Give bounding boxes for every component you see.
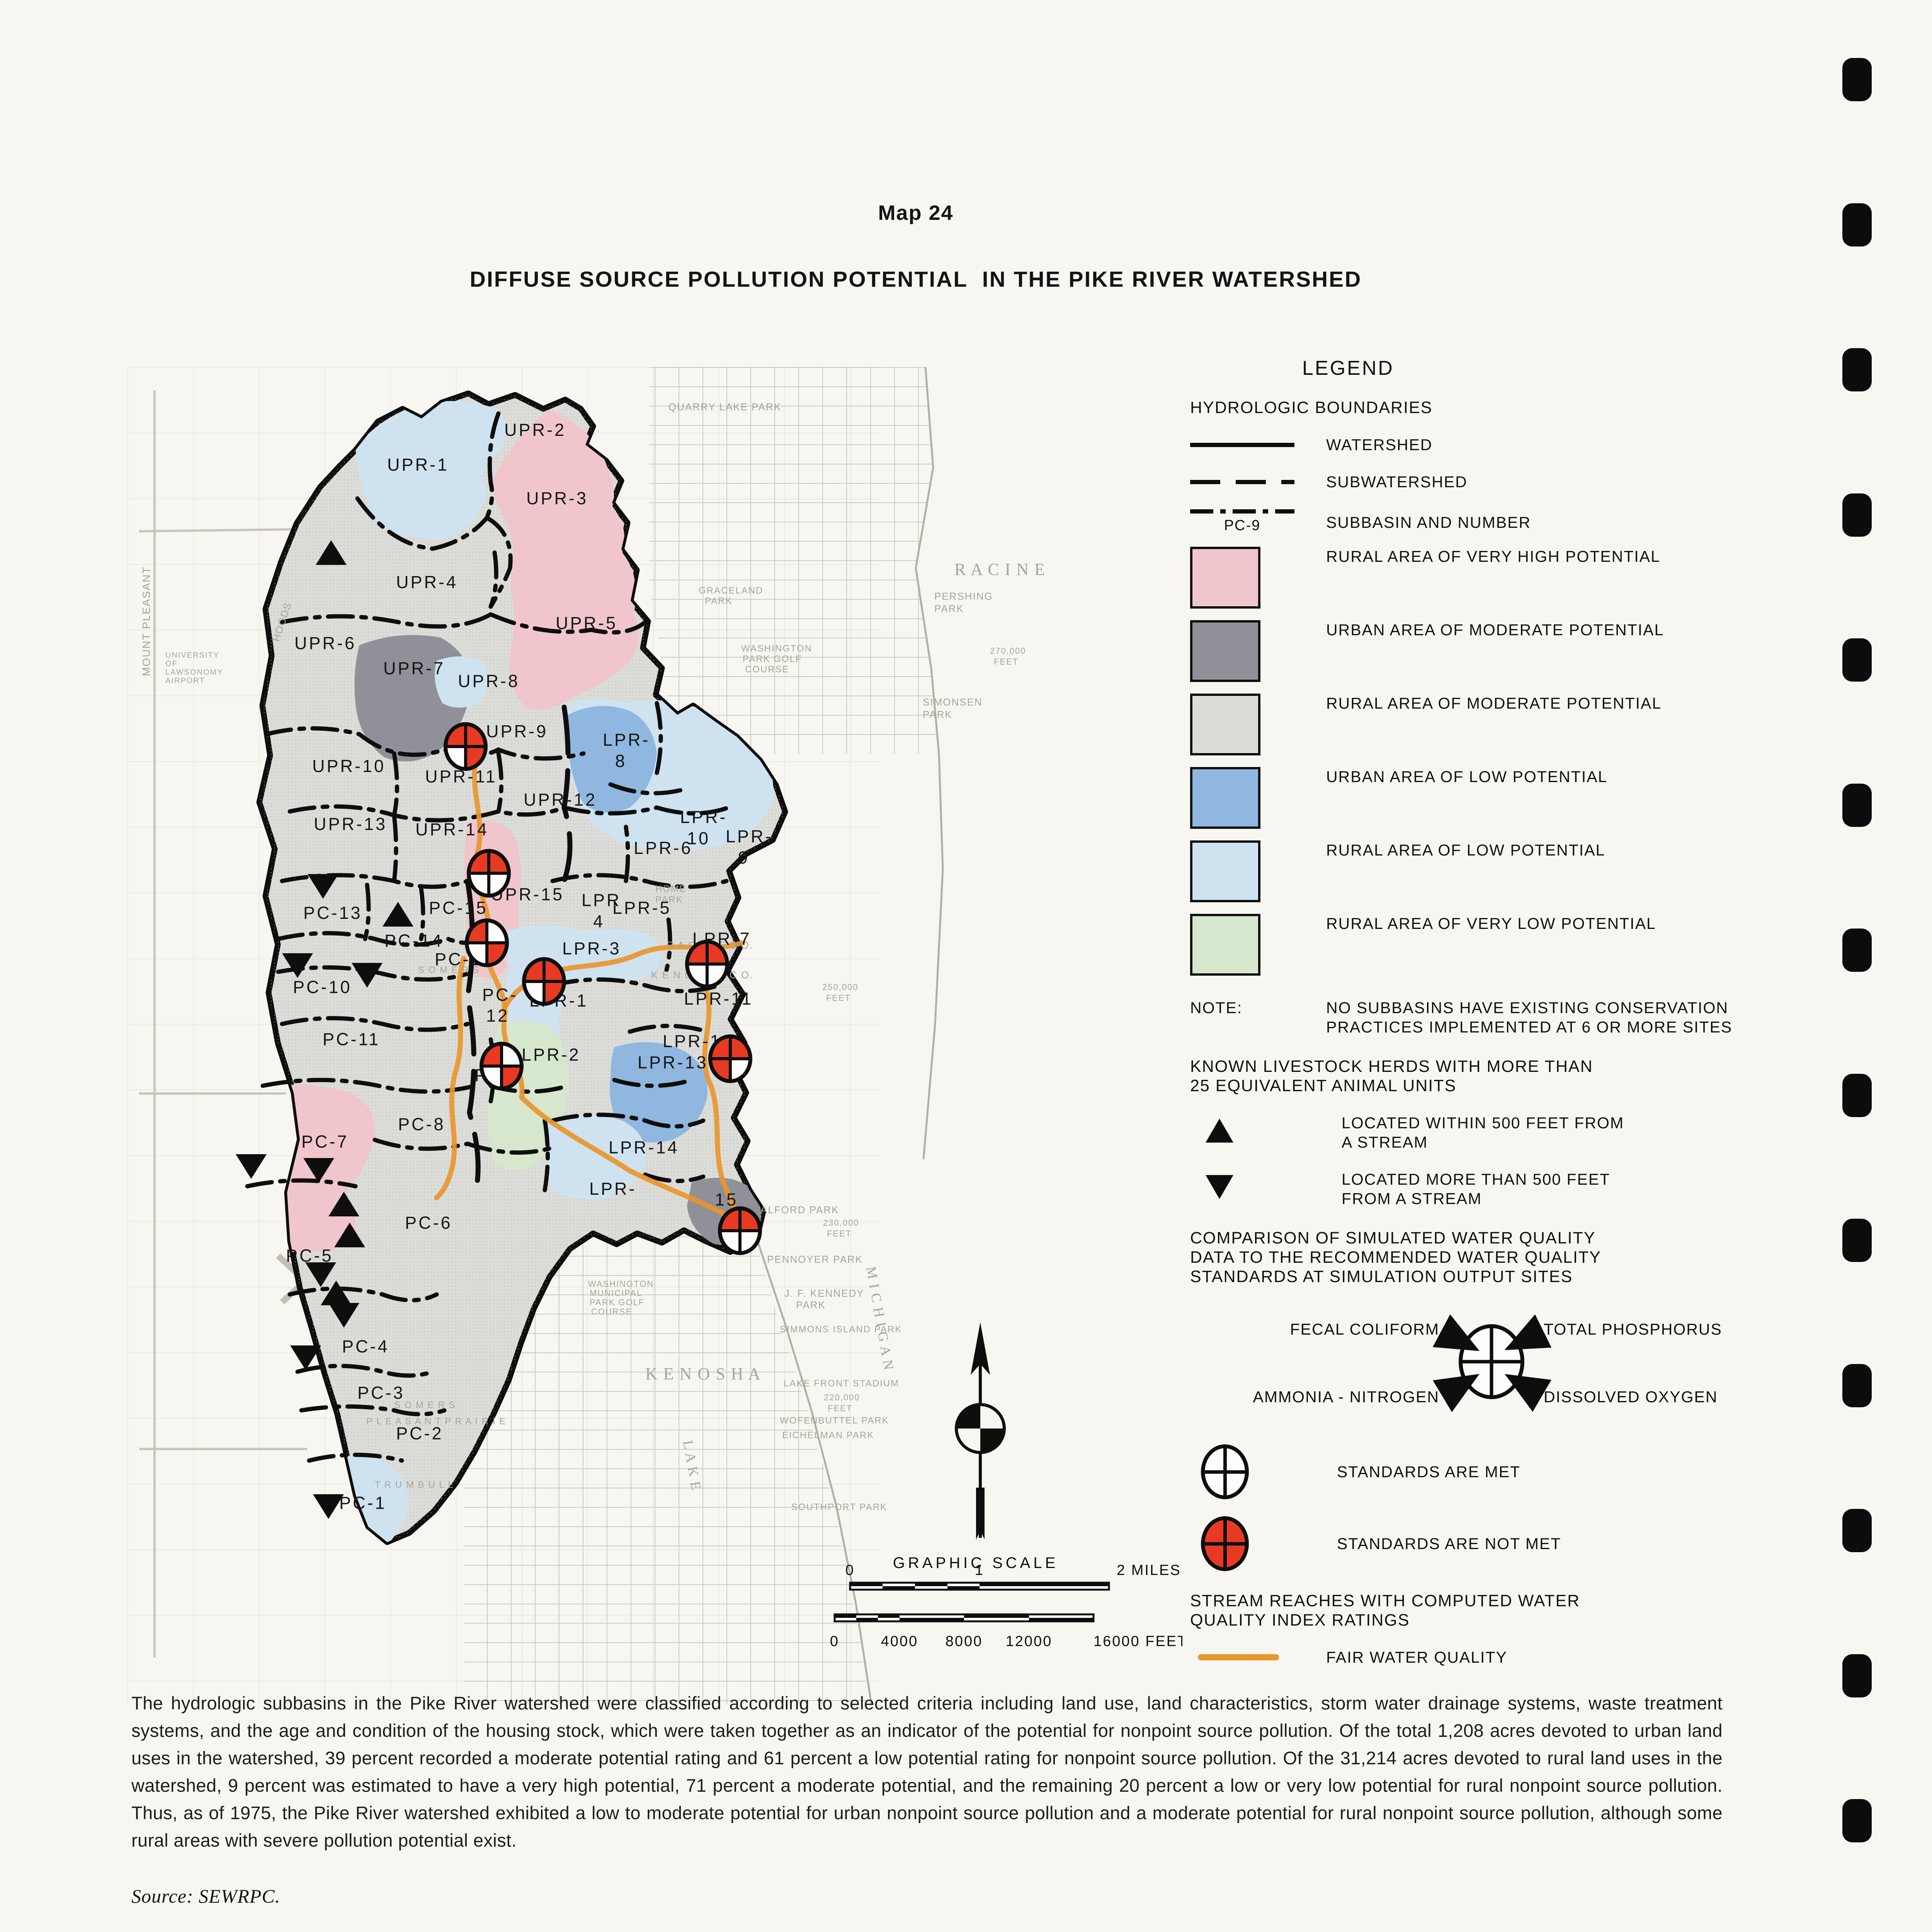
binding-mark <box>1842 1799 1872 1842</box>
water-quality-site <box>524 959 564 1004</box>
subbasin-label: UPR-5 <box>556 613 617 633</box>
map-background-label: PERSHING <box>934 590 993 602</box>
legend-section-boundaries: HYDROLOGIC BOUNDARIES <box>1190 398 1781 417</box>
map-background-label: PARK <box>934 603 964 614</box>
map-background-label: FEET <box>827 1229 852 1238</box>
legend-livestock-within: LOCATED WITHIN 500 FEET FROM A STREAM <box>1190 1113 1781 1152</box>
map-background-label: PENNOYER PARK <box>767 1253 863 1265</box>
water-quality-site <box>481 1044 522 1088</box>
subbasin-label: LPR-13 <box>638 1053 708 1072</box>
scale-feet-tick: 8000 <box>946 1633 983 1650</box>
map-background-label: EICHELMAN PARK <box>782 1430 874 1440</box>
map-background-label: GRACELAND <box>699 585 763 596</box>
water-quality-site <box>687 942 727 986</box>
water-quality-site <box>467 920 507 965</box>
watershed-line-sample <box>1190 443 1294 447</box>
subbasin-label: LPR-14 <box>609 1138 679 1157</box>
subbasin-label: UPR-8 <box>458 671 520 691</box>
subbasin-label: 12 <box>486 1006 509 1026</box>
subwatershed-line-sample <box>1190 480 1294 484</box>
up-triangle-icon <box>1190 1119 1310 1147</box>
standards-met-icon <box>1201 1444 1249 1499</box>
swatch-urban-moderate <box>1190 620 1260 682</box>
swatch-rural-very-high <box>1190 547 1260 609</box>
map-background-label: WASHINGTON <box>588 1279 654 1289</box>
legend-area-row: URBAN AREA OF MODERATE POTENTIAL <box>1190 620 1781 682</box>
map-background-label: AIRPORT <box>165 677 205 685</box>
subbasin-label: UPR-3 <box>526 488 588 508</box>
scale-feet-tick: 12000 <box>1006 1633 1053 1650</box>
scale-miles-tick: 2 MILES <box>1117 1562 1181 1578</box>
subbasin-label: LPR- <box>589 1179 637 1199</box>
water-quality-site <box>720 1208 760 1253</box>
map-background-label: PARK GOLF <box>590 1298 645 1307</box>
subbasin-label: PC-15 <box>429 898 488 918</box>
map-background-label: OF <box>165 660 178 668</box>
map-background-label: FEET <box>828 1403 852 1413</box>
map-background-label: T R U M B U L L <box>375 1480 454 1490</box>
binding-mark <box>1842 1219 1872 1262</box>
subbasin-label: PC-2 <box>396 1423 444 1443</box>
svg-text:DISSOLVED OXYGEN: DISSOLVED OXYGEN <box>1544 1388 1718 1406</box>
scale-miles-tick: 1 <box>975 1562 984 1578</box>
subbasin-number-sample: PC-9 <box>1190 516 1294 535</box>
map-background-label: PARK <box>796 1299 826 1311</box>
water-quality-site <box>446 724 486 769</box>
legend-stream-title: STREAM REACHES WITH COMPUTED WATER QUALI… <box>1190 1591 1781 1630</box>
down-triangle-icon <box>1190 1175 1310 1203</box>
legend-comparison-title: COMPARISON OF SIMULATED WATER QUALITY DA… <box>1190 1228 1781 1286</box>
subbasin-label: UPR-9 <box>486 721 548 741</box>
binding-mark <box>1842 58 1872 101</box>
source-line: Source: SEWRPC. <box>131 1885 280 1907</box>
water-quality-site <box>469 851 509 896</box>
subbasin-label: LPR-6 <box>634 838 693 858</box>
subbasin-label: UPR-1 <box>387 455 449 474</box>
svg-text:FECAL COLIFORM: FECAL COLIFORM <box>1290 1320 1439 1338</box>
legend-standards-not-met: STANDARDS ARE NOT MET <box>1190 1516 1781 1571</box>
racine-street-grid <box>649 367 939 753</box>
legend-livestock-title: KNOWN LIVESTOCK HERDS WITH MORE THAN 25 … <box>1190 1057 1781 1095</box>
subbasin-label: PC- <box>482 985 518 1005</box>
map-background-label: WOFENBUTTEL PARK <box>780 1415 889 1426</box>
map-background-label: FEET <box>994 657 1019 667</box>
north-arrow <box>956 1322 1004 1539</box>
subbasin-label: PC-7 <box>301 1132 349 1151</box>
water-quality-site <box>710 1036 750 1081</box>
map-background-label: LAKE FRONT STADIUM <box>784 1378 899 1389</box>
scale-feet-tick: 4000 <box>881 1633 918 1650</box>
subbasin-label: UPR-10 <box>312 756 386 776</box>
legend-area-row: RURAL AREA OF VERY HIGH POTENTIAL <box>1190 547 1781 609</box>
binding-mark <box>1842 929 1872 972</box>
legend-area-row: RURAL AREA OF VERY LOW POTENTIAL <box>1190 914 1781 976</box>
binding-mark <box>1842 638 1872 682</box>
document-page: Map 24 DIFFUSE SOURCE POLLUTION POTENTIA… <box>0 0 1932 1932</box>
subbasin-line-sample <box>1190 509 1294 514</box>
legend-subbasin-row: PC-9 SUBBASIN AND NUMBER <box>1190 509 1781 535</box>
subbasin-label: PC-14 <box>384 931 444 951</box>
legend-area-row: URBAN AREA OF LOW POTENTIAL <box>1190 767 1781 829</box>
map-number: Map 24 <box>0 201 1832 225</box>
legend-subwatershed-row: SUBWATERSHED <box>1190 472 1781 492</box>
map-background-label: COURSE <box>745 664 789 675</box>
map-background-label: MOUNT PLEASANT <box>140 566 152 676</box>
subbasin-label: PC-3 <box>357 1383 405 1403</box>
subbasin-label: UPR-7 <box>383 658 445 678</box>
subbasin-label: LPR-5 <box>612 898 672 918</box>
watershed-map: QUARRY LAKE PARKR A C I N EPERSHINGPARKG… <box>128 367 1182 1704</box>
map-background-label: PARK GOLF <box>743 654 802 664</box>
legend-livestock-beyond: LOCATED MORE THAN 500 FEET FROM A STREAM <box>1190 1170 1781 1208</box>
map-background-label: 250,000 <box>822 982 859 992</box>
subbasin-label: PC-10 <box>293 977 352 997</box>
legend-area-row: RURAL AREA OF MODERATE POTENTIAL <box>1190 694 1781 755</box>
subbasin-label: UPR-12 <box>524 790 597 810</box>
legend-standards-met: STANDARDS ARE MET <box>1190 1444 1781 1499</box>
binding-mark <box>1842 1654 1872 1697</box>
map-background-label: MUNICIPAL <box>590 1288 642 1298</box>
map-background-label: HOME <box>655 884 686 894</box>
scale-feet-tick: 16000 FEET <box>1094 1633 1182 1650</box>
scale-feet-tick: 0 <box>830 1633 839 1650</box>
standards-not-met-icon <box>1201 1516 1249 1571</box>
legend-watershed-row: WATERSHED <box>1190 435 1781 454</box>
graphic-scale: GRAPHIC SCALE 012 MILES 0400080001200016… <box>830 1554 1182 1650</box>
map-background-label: ALFORD PARK <box>760 1204 839 1216</box>
swatch-urban-low <box>1190 767 1260 829</box>
subbasin-label: LPR-11 <box>684 989 753 1009</box>
subbasin-label: PC-6 <box>405 1213 452 1233</box>
subbasin-label: 4 <box>593 912 605 931</box>
subbasin-label: LPR- <box>680 807 728 827</box>
map-caption: The hydrologic subbasins in the Pike Riv… <box>131 1689 1723 1854</box>
subbasin-label: PC-1 <box>339 1493 387 1513</box>
subbasin-label: 15 <box>715 1190 738 1209</box>
fair-water-quality-line <box>1198 1654 1279 1660</box>
subbasin-label: PC-13 <box>303 903 362 923</box>
map-background-label: J. F. KENNEDY <box>784 1287 864 1299</box>
subbasin-label: UPR-14 <box>415 820 489 839</box>
swatch-rural-low <box>1190 840 1260 902</box>
subbasin-label: UPR-2 <box>504 420 566 440</box>
map-legend: LEGEND HYDROLOGIC BOUNDARIES WATERSHED S… <box>1190 359 1781 1667</box>
subbasin-label: UPR-6 <box>294 633 356 653</box>
map-background-label: PARK <box>705 596 733 606</box>
map-background-label: R A C I N E <box>954 560 1046 579</box>
binding-mark <box>1842 203 1872 247</box>
binding-mark <box>1842 784 1872 827</box>
legend-title: LEGEND <box>1302 359 1781 378</box>
subbasin-label: UPR-13 <box>314 814 387 834</box>
map-background-label: UNIVERSITY <box>165 651 219 660</box>
subbasin-label: 9 <box>738 848 750 867</box>
binding-mark <box>1842 1074 1872 1117</box>
svg-text:TOTAL PHOSPHORUS: TOTAL PHOSPHORUS <box>1544 1320 1722 1338</box>
subbasin-label: PC-4 <box>342 1337 389 1356</box>
binding-mark <box>1842 348 1872 391</box>
subbasin-label: PC-8 <box>398 1114 446 1134</box>
legend-fair-quality: FAIR WATER QUALITY <box>1190 1648 1781 1667</box>
binding-mark <box>1842 1364 1872 1407</box>
subbasin-label: LPR- <box>726 827 773 846</box>
map-background-label: PARK <box>923 709 952 720</box>
map-background-label: WASHINGTON <box>741 643 812 654</box>
quadrant-diagram: FECAL COLIFORM TOTAL PHOSPHORUS AMMONIA … <box>1190 1286 1781 1437</box>
map-background-label: K E N O S H A <box>645 1364 761 1383</box>
swatch-rural-very-low <box>1190 914 1260 976</box>
page-title: DIFFUSE SOURCE POLLUTION POTENTIAL IN TH… <box>0 267 1832 292</box>
binding-mark <box>1842 1509 1872 1552</box>
swatch-rural-moderate <box>1190 694 1260 755</box>
subbasin-label: LPR- <box>603 730 650 750</box>
map-background-label: COURSE <box>591 1307 632 1316</box>
subbasin-label: LPR-2 <box>522 1045 581 1065</box>
legend-note: NOTE: NO SUBBASINS HAVE EXISTING CONSERV… <box>1190 998 1781 1037</box>
map-background-label: 230,000 <box>823 1218 859 1228</box>
map-background-label: FEET <box>826 993 851 1003</box>
map-background-label: 270,000 <box>990 646 1026 656</box>
map-background-label: QUARRY LAKE PARK <box>668 401 781 413</box>
subbasin-label: UPR-4 <box>396 572 458 592</box>
subbasin-label: LPR-3 <box>562 939 621 958</box>
map-background-label: SOUTHPORT PARK <box>791 1502 887 1512</box>
subbasin-label: 8 <box>615 751 627 771</box>
subbasin-label: PC-11 <box>323 1029 380 1049</box>
map-background-label: LAWSONOMY <box>165 668 223 677</box>
scale-miles-tick: 0 <box>845 1562 855 1578</box>
map-background-label: 220,000 <box>824 1393 860 1402</box>
map-background-label: SIMONSEN <box>923 696 983 708</box>
svg-text:AMMONIA - NITROGEN: AMMONIA - NITROGEN <box>1253 1388 1439 1406</box>
legend-area-row: RURAL AREA OF LOW POTENTIAL <box>1190 840 1781 902</box>
binding-mark <box>1842 493 1872 537</box>
